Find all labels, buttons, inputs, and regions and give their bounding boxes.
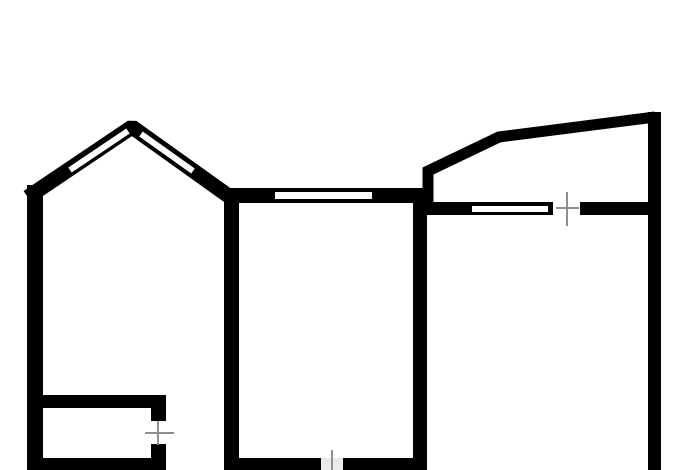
attic-window-right [141,134,193,171]
attic-bay-wall [34,127,230,197]
small-room-bottom-wall [27,458,166,470]
balcony-wall [428,117,655,208]
partition-wall-left [224,194,239,470]
small-room-top-wall [40,395,166,408]
middle-room-window [275,192,372,199]
floor-plan-page [0,0,700,470]
right-room-top-wall-right [580,202,648,215]
right-room-window [472,206,548,212]
floor-plan [0,0,700,470]
bottom-wall-left-of-door [224,458,321,470]
bottom-wall-right-of-door [343,458,427,470]
right-exterior-wall [648,112,661,470]
attic-window-left [70,131,128,170]
small-room-door-stub-upper [151,395,166,421]
partition-wall-right [413,188,427,470]
left-exterior-wall [27,185,43,470]
